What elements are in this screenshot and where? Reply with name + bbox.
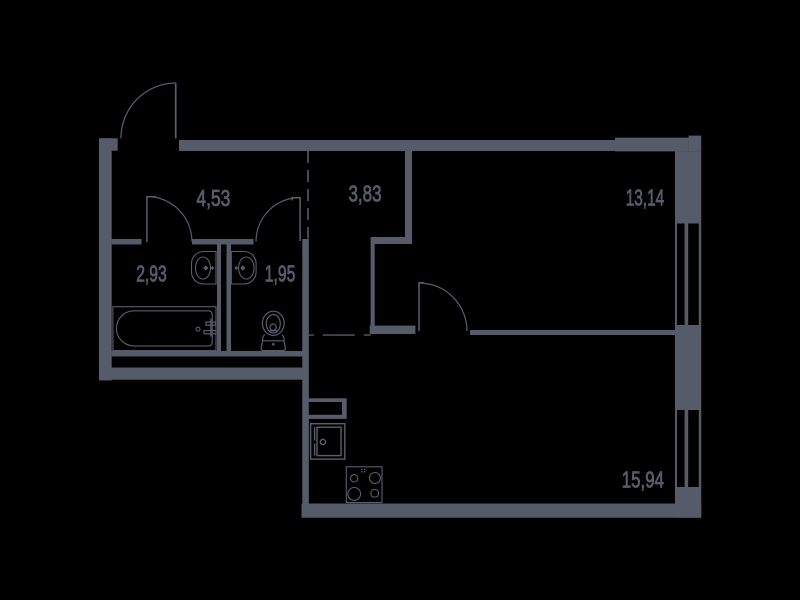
svg-text:13,14: 13,14 <box>626 184 665 210</box>
svg-text:15,94: 15,94 <box>622 467 664 493</box>
svg-text:4,53: 4,53 <box>196 185 230 211</box>
svg-text:2,93: 2,93 <box>136 261 167 287</box>
svg-text:3,83: 3,83 <box>349 181 382 207</box>
svg-text:1,95: 1,95 <box>265 260 296 286</box>
